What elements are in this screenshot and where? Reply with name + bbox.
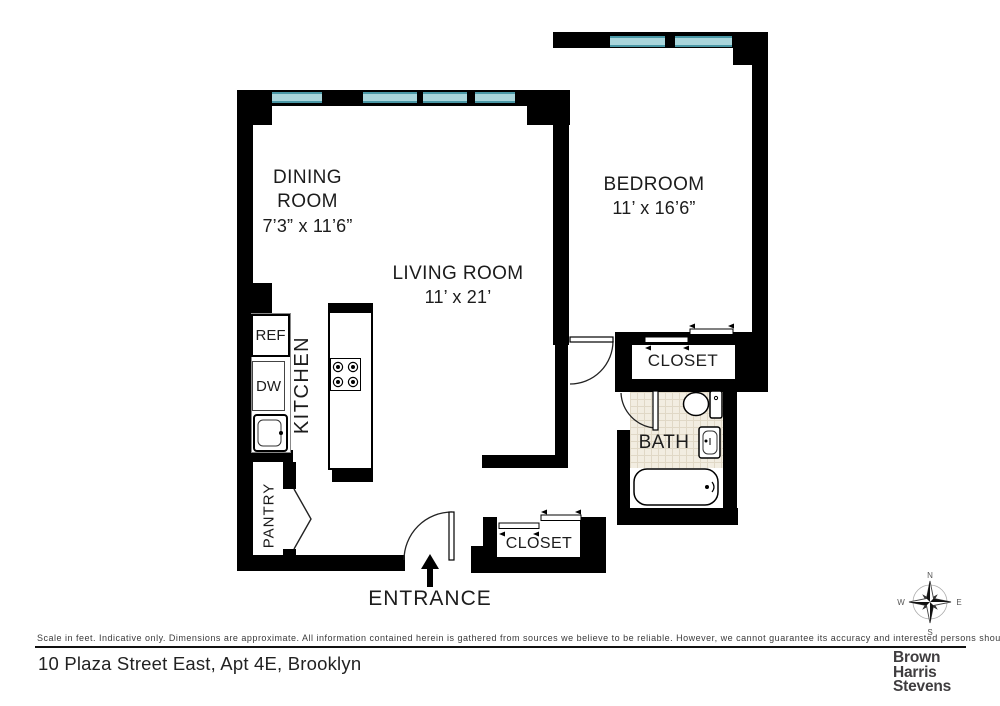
entrance-arrow-icon xyxy=(421,554,439,587)
living-room-dims: 11’ x 21’ xyxy=(378,286,538,309)
dining-room-name-2: ROOM xyxy=(240,190,375,214)
window xyxy=(272,92,322,103)
living-room-label: LIVING ROOM 11’ x 21’ xyxy=(378,262,538,309)
brown-harris-stevens-logo: Brown Harris Stevens xyxy=(893,651,951,695)
island-cap xyxy=(332,468,373,482)
window xyxy=(423,92,467,103)
refrigerator: REF xyxy=(251,314,290,357)
living-room-name: LIVING ROOM xyxy=(378,262,538,286)
entry-closet-sliding-doors xyxy=(499,510,581,537)
wall-segment xyxy=(482,455,568,468)
compass-rose-icon: N E S W xyxy=(897,571,961,637)
wall-segment xyxy=(617,508,738,525)
stove xyxy=(330,358,361,391)
footer-divider xyxy=(35,646,966,648)
ref-label: REF xyxy=(256,327,286,344)
dw-label: DW xyxy=(256,378,281,395)
bath-label: BATH xyxy=(632,431,696,455)
wall-segment xyxy=(471,546,483,573)
entrance-door xyxy=(404,512,454,560)
bathtub xyxy=(634,469,718,505)
brand-line-3: Stevens xyxy=(893,680,951,695)
bedroom-closet-label: CLOSET xyxy=(635,350,731,372)
compass-w-label: W xyxy=(897,598,905,607)
wall-segment xyxy=(555,345,568,468)
window xyxy=(675,36,732,47)
compass-e-label: E xyxy=(956,598,961,607)
window xyxy=(363,92,417,103)
wall-segment xyxy=(483,557,606,573)
wall-segment xyxy=(237,283,272,313)
address-title: 10 Plaza Street East, Apt 4E, Brooklyn xyxy=(38,653,361,675)
dining-room-dims: 7’3” x 11’6” xyxy=(240,215,375,238)
window xyxy=(475,92,515,103)
bedroom-label: BEDROOM 11’ x 16’6” xyxy=(583,173,725,220)
bedroom-dims: 11’ x 16’6” xyxy=(583,197,725,220)
floorplan-page: REF DW DINING ROOM 7’3” x 11’6” LIVING R… xyxy=(0,0,1000,706)
wall-segment xyxy=(283,462,296,489)
window xyxy=(610,36,665,47)
wall-segment xyxy=(723,387,737,512)
pantry-door xyxy=(294,489,311,549)
wall-segment xyxy=(752,32,768,332)
disclaimer-text: Scale in feet. Indicative only. Dimensio… xyxy=(37,633,967,643)
bath-tile-floor xyxy=(630,392,723,468)
kitchen-label: KITCHEN xyxy=(291,315,313,455)
dining-room-name-1: DINING xyxy=(240,166,375,190)
entrance-label: ENTRANCE xyxy=(352,586,508,613)
compass-n-label: N xyxy=(927,571,933,580)
bedroom-name: BEDROOM xyxy=(583,173,725,197)
entry-closet-label: CLOSET xyxy=(496,534,582,554)
wall-segment xyxy=(553,90,569,345)
dishwasher: DW xyxy=(252,361,285,411)
pantry-label: PANTRY xyxy=(261,466,278,566)
wall-segment xyxy=(735,332,768,392)
bedroom-door xyxy=(570,337,613,384)
dining-room-label: DINING ROOM 7’3” x 11’6” xyxy=(240,166,375,238)
